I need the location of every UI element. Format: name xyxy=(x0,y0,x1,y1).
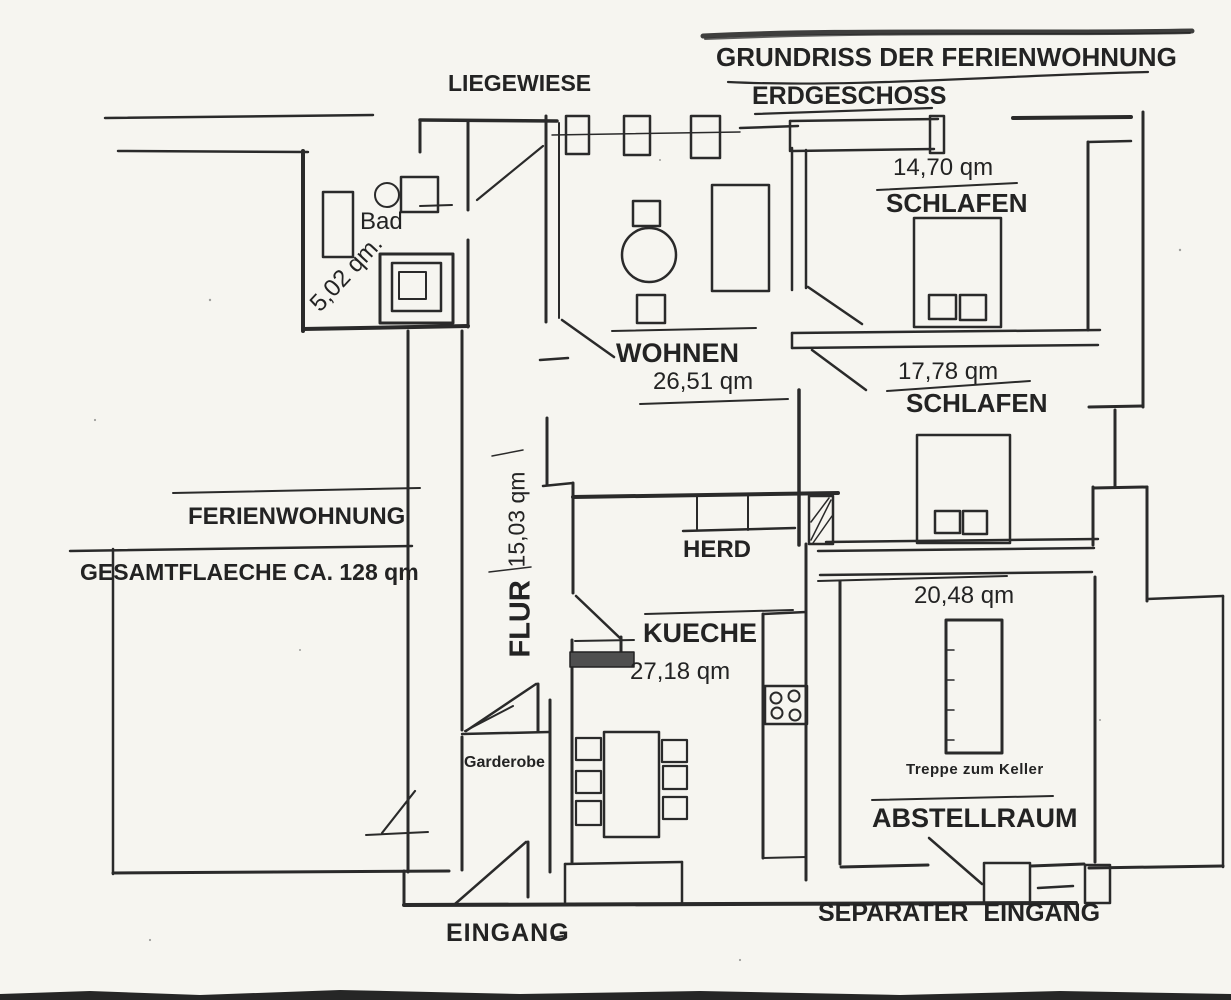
kitchen-counter-bar xyxy=(570,652,634,667)
label-floor: ERDGESCHOSS xyxy=(752,84,946,109)
label-wohnen-area: 26,51 qm xyxy=(653,370,753,394)
floorplan-page: LIEGEWIESE GRUNDRISS DER FERIENWOHNUNG E… xyxy=(0,0,1231,1000)
label-herd: HERD xyxy=(683,538,751,562)
scan-artifact-bottom-band xyxy=(0,990,1231,1000)
label-abstellraum-area: 20,48 qm xyxy=(914,584,1014,608)
herd-hatched-box-icon xyxy=(809,496,833,544)
entrance-door xyxy=(455,842,528,904)
label-ferienwohnung: FERIENWOHNUNG xyxy=(188,505,405,529)
label-gesamtflaeche: GESAMTFLAECHE CA. 128 qm xyxy=(80,561,419,584)
storage-walls xyxy=(840,577,1110,903)
label-schlafen2: SCHLAFEN xyxy=(906,390,1048,416)
label-kueche-area: 27,18 qm xyxy=(630,660,730,684)
label-flur-area: 15,03 qm xyxy=(506,465,529,575)
bed1-icon xyxy=(914,218,1001,327)
label-schlafen1-area: 14,70 qm xyxy=(893,156,993,180)
label-abstellraum: ABSTELLRAUM xyxy=(872,805,1077,832)
label-kueche: KUECHE xyxy=(643,620,757,647)
label-treppe-zum-keller: Treppe zum Keller xyxy=(906,762,1044,777)
page-title: GRUNDRISS DER FERIENWOHNUNG xyxy=(716,44,1177,70)
bathroom-walls xyxy=(303,120,557,331)
dining-table-icon xyxy=(576,732,687,837)
toilet-icon xyxy=(375,177,438,212)
label-wohnen: WOHNEN xyxy=(616,340,739,367)
stairs-icon xyxy=(946,620,1002,753)
livingroom-furniture-icon xyxy=(622,185,769,323)
label-liegewiese: LIEGEWIESE xyxy=(448,72,591,95)
floorplan-drawing xyxy=(0,0,1231,1000)
label-eingang: EINGANG xyxy=(446,921,570,946)
label-garderobe: Garderobe xyxy=(464,755,545,771)
vanity-icon xyxy=(323,192,353,257)
label-schlafen2-area: 17,78 qm xyxy=(898,360,998,384)
kitchen-walls xyxy=(543,399,838,902)
label-schlafen1: SCHLAFEN xyxy=(886,190,1028,216)
scan-artifact-top-edge xyxy=(703,31,1192,39)
label-flur: FLUR xyxy=(507,586,536,658)
label-separater-eingang: SEPARATER EINGANG xyxy=(818,901,1100,926)
bed2-icon xyxy=(917,435,1010,543)
stove-icon xyxy=(765,686,807,724)
shower-icon xyxy=(380,254,453,323)
